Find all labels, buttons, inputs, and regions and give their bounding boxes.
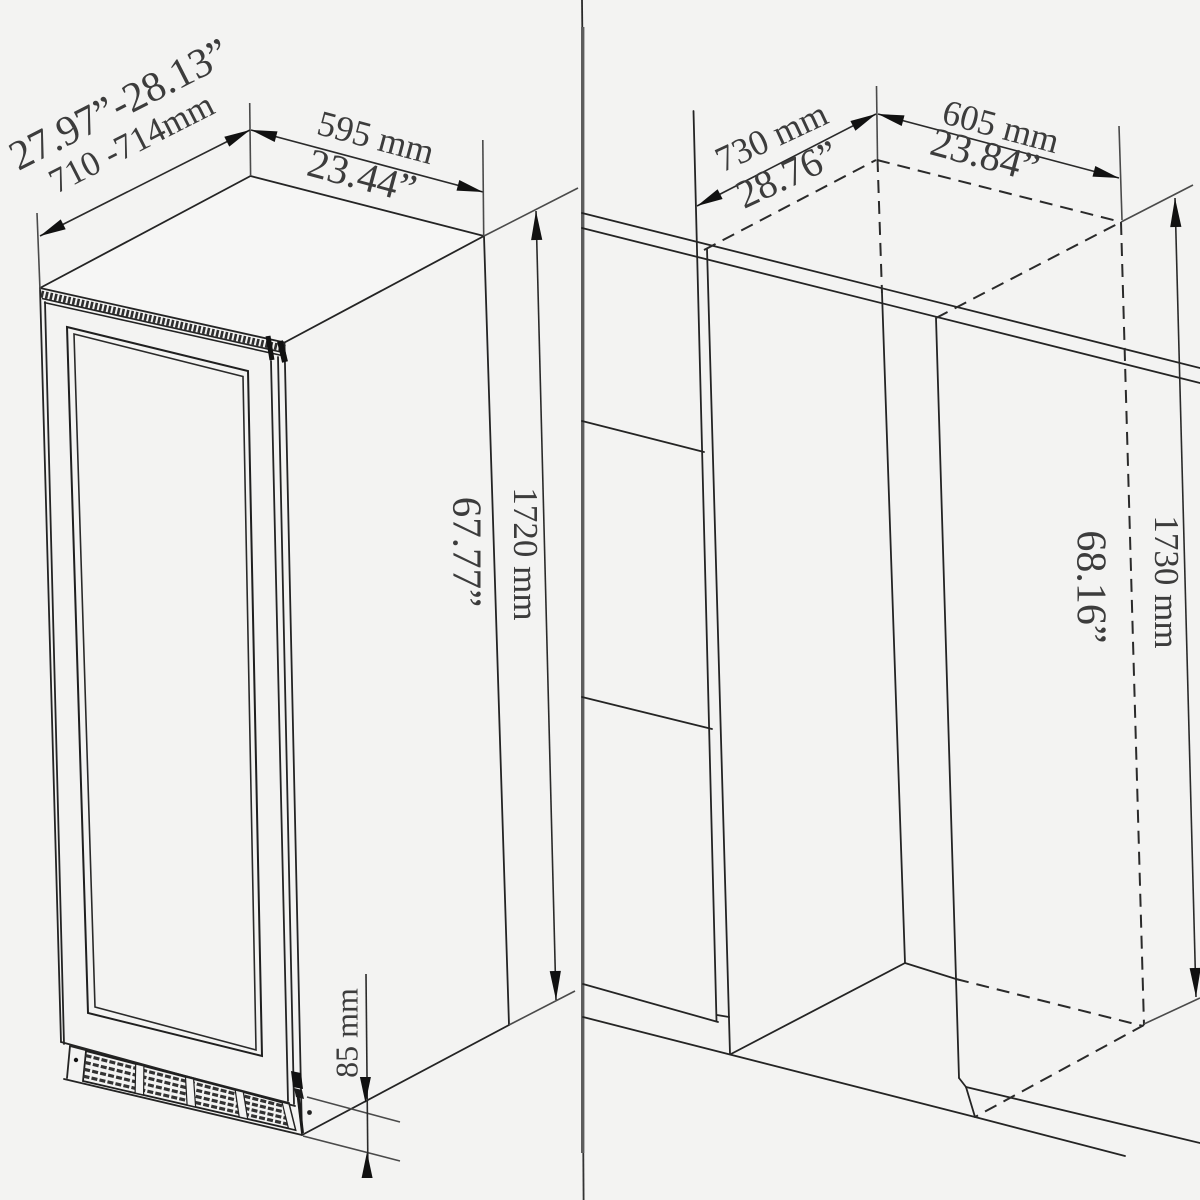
svg-text:1730 mm: 1730 mm — [1147, 515, 1186, 648]
svg-text:1720 mm: 1720 mm — [506, 487, 545, 620]
svg-text:68.16”: 68.16” — [1067, 530, 1113, 643]
svg-text:85 mm: 85 mm — [328, 988, 364, 1078]
svg-text:67.77”: 67.77” — [445, 497, 491, 607]
